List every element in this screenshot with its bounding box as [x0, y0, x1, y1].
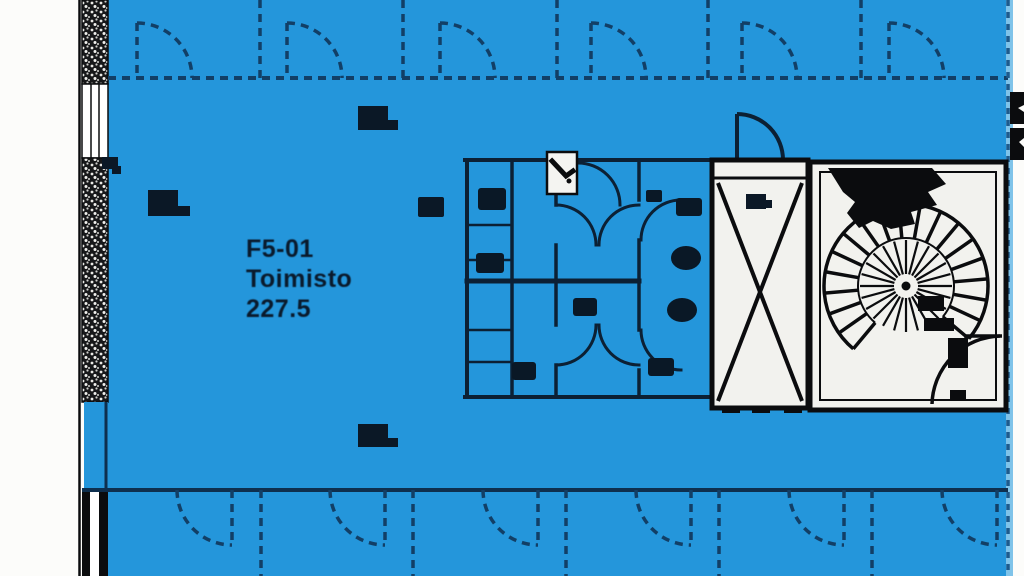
room-id: F5-01 — [246, 234, 352, 264]
room-area: 227.5 — [246, 294, 352, 324]
floorplan-drawing — [0, 0, 1024, 576]
floorplan-screenshot: F5-01 Toimisto 227.5 — [0, 0, 1024, 576]
window-segment — [82, 84, 108, 158]
elevator-shaft — [712, 160, 808, 413]
room-label: F5-01 Toimisto 227.5 — [246, 234, 352, 324]
plan-marker — [418, 197, 444, 217]
spiral-center-post — [902, 282, 911, 291]
elevator-door-ticks — [722, 406, 802, 413]
window-segment — [82, 490, 108, 576]
hatched-wall-segment — [82, 0, 108, 84]
glazed-wall-segment — [84, 402, 108, 490]
hatched-wall-segment — [82, 158, 108, 402]
room-type: Toimisto — [246, 264, 352, 294]
utility-box — [547, 152, 577, 194]
stair-room — [810, 162, 1006, 410]
